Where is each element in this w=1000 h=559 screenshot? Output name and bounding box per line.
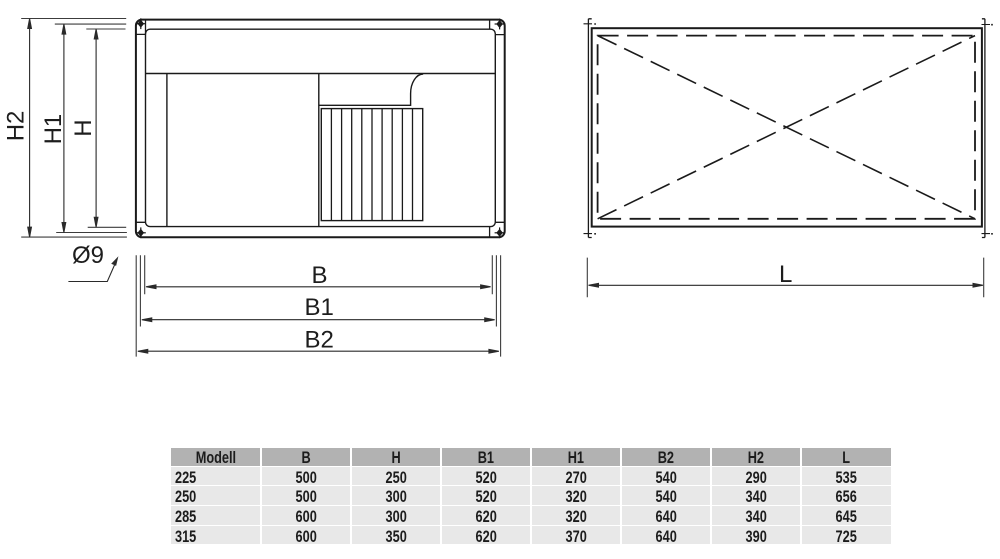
svg-text:H1: H1 xyxy=(40,114,67,145)
svg-text:B2: B2 xyxy=(305,327,334,354)
svg-text:B1: B1 xyxy=(305,294,334,321)
svg-text:H: H xyxy=(70,119,97,136)
svg-text:Ø9: Ø9 xyxy=(72,242,104,269)
svg-text:L: L xyxy=(779,261,792,288)
svg-text:B: B xyxy=(312,262,328,289)
svg-text:H2: H2 xyxy=(3,111,30,142)
